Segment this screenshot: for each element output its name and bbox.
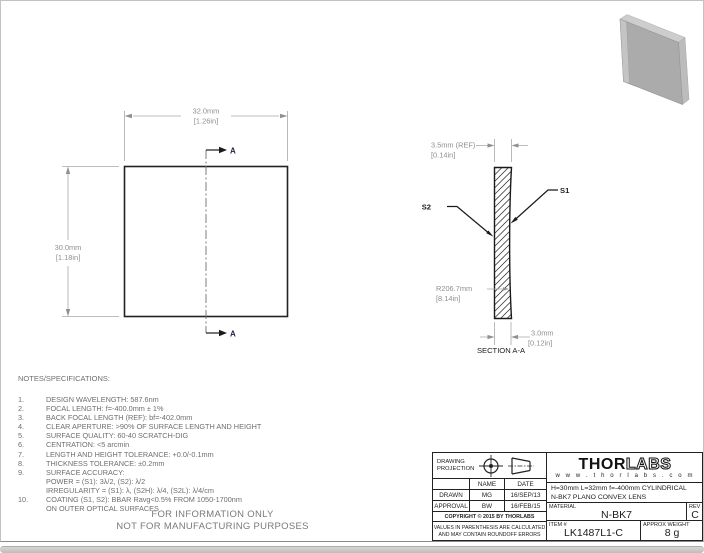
section-body-hatched xyxy=(495,168,512,319)
section-label-top: A xyxy=(230,147,236,156)
item-number-cell: ITEM # LK1487L1-C xyxy=(547,521,641,541)
dim-arrow xyxy=(125,114,133,118)
note-row: 1.DESIGN WAVELENGTH: 587.6nm xyxy=(18,395,418,404)
note-text: SURFACE ACCURACY: xyxy=(46,468,125,477)
dim-arrow xyxy=(280,114,288,118)
note-row: 9.SURFACE ACCURACY: xyxy=(18,468,418,477)
parenthesis-disclaimer: VALUES IN PARENTHESIS ARE CALCULATED AND… xyxy=(433,522,547,541)
notes-specifications: NOTES/SPECIFICATIONS: 1.DESIGN WAVELENGT… xyxy=(18,374,418,513)
note-row: IRREGULARITY = (S1): λ, (S2H): λ/4, (S2L… xyxy=(18,486,418,495)
note-number: 8. xyxy=(18,459,46,468)
drawing-projection-label: DRAWING PROJECTION xyxy=(437,459,474,472)
dim-arrow xyxy=(66,167,70,175)
section-arrow-top xyxy=(219,147,227,153)
approval-date: 16/FEB/15 xyxy=(505,501,547,512)
section-caption: SECTION A-A xyxy=(477,346,526,355)
thorlabs-logo: THORLABS w w w . t h o r l a b s . c o m xyxy=(547,453,703,483)
note-row: 3.BACK FOCAL LENGTH (REF): bf=-402.0mm xyxy=(18,413,418,422)
horizontal-scrollbar[interactable] xyxy=(0,546,704,553)
note-number: 6. xyxy=(18,440,46,449)
rev-cell: REV C xyxy=(687,503,703,521)
note-row: 2.FOCAL LENGTH: f=-400.0mm ± 1% xyxy=(18,404,418,413)
logo-thor: THOR xyxy=(579,456,626,473)
date-header: DATE xyxy=(505,479,547,490)
material-cell: MATERIAL N-BK7 xyxy=(547,503,687,521)
note-text: POWER = (S1): 3λ/2, (S2): λ/2 xyxy=(46,477,145,486)
rev-value: C xyxy=(689,510,701,521)
lens-3d-front-face xyxy=(620,19,683,105)
info-only-disclaimer: FOR INFORMATION ONLY NOT FOR MANUFACTURI… xyxy=(40,509,385,532)
note-number: 1. xyxy=(18,395,46,404)
note-text: COATING (S1, S2): BBAR Ravg<0.5% FROM 10… xyxy=(46,495,242,504)
drawn-name: MG xyxy=(470,490,505,501)
note-text: CLEAR APERTURE: >90% OF SURFACE LENGTH A… xyxy=(46,422,261,431)
section-view: 3.5mm (REF) [0.14in] 3.0mm [0.12in] R206… xyxy=(422,139,570,355)
edge-thickness-in: [0.14in] xyxy=(431,151,455,160)
drawing-projection-cell: DRAWING PROJECTION xyxy=(433,453,547,479)
center-thickness-in: [0.12in] xyxy=(528,339,552,348)
note-row: 6.CENTRATION: <5 arcmin xyxy=(18,440,418,449)
front-height-in: [1.18in] xyxy=(56,253,80,262)
name-header: NAME xyxy=(470,479,505,490)
radius-in: [8.14in] xyxy=(436,294,460,303)
drawn-label: DRAWN xyxy=(433,490,470,501)
approval-label: APPROVAL xyxy=(433,501,470,512)
s1-leader-line xyxy=(513,190,558,222)
dim-arrow xyxy=(511,335,518,339)
note-text: LENGTH AND HEIGHT TOLERANCE: +0.0/-0.1mm xyxy=(46,450,214,459)
thorlabs-url: w w w . t h o r l a b s . c o m xyxy=(555,473,694,479)
dim-arrow xyxy=(512,143,519,147)
note-row: POWER = (S1): 3λ/2, (S2): λ/2 xyxy=(18,477,418,486)
s1-label: S1 xyxy=(560,186,570,195)
drawn-date: 16/SEP/13 xyxy=(505,490,547,501)
material-value: N-BK7 xyxy=(549,510,684,521)
note-number: 9. xyxy=(18,468,46,477)
note-number: 5. xyxy=(18,431,46,440)
note-text: DESIGN WAVELENGTH: 587.6nm xyxy=(46,395,159,404)
notes-heading: NOTES/SPECIFICATIONS: xyxy=(18,374,418,383)
note-text: CENTRATION: <5 arcmin xyxy=(46,440,129,449)
note-row: 5.SURFACE QUALITY: 60-40 SCRATCH-DIG xyxy=(18,431,418,440)
approx-weight-cell: APPROX WEIGHT 8 g xyxy=(641,521,703,541)
edge-thickness-lines xyxy=(476,139,528,162)
center-thickness-lines xyxy=(480,322,530,345)
note-row: 7.LENGTH AND HEIGHT TOLERANCE: +0.0/-0.1… xyxy=(18,450,418,459)
front-view: 32.0mm [1.26in] 30.0mm [1.18in] A A xyxy=(55,107,288,339)
technical-drawing-page: { "drawing": { "front_view": { "width_mm… xyxy=(0,0,704,553)
note-row: 4.CLEAR APERTURE: >90% OF SURFACE LENGTH… xyxy=(18,422,418,431)
part-description: H=30mm L=32mm f=-400mm CYLINDRICAL N-BK7… xyxy=(547,483,703,503)
disclaimer-line2: AND MAY CONTAIN ROUNDOFF ERRORS xyxy=(438,532,540,539)
third-angle-projection-icon xyxy=(478,454,540,478)
front-height-mm: 30.0mm xyxy=(55,243,82,252)
radius-mm: R206.7mm xyxy=(436,284,472,293)
lens-3d-view xyxy=(620,15,689,105)
logo-labs: LABS xyxy=(626,456,672,473)
approval-name: BW xyxy=(470,501,505,512)
copyright-notice: COPYRIGHT © 2015 BY THORLABS xyxy=(433,512,547,522)
note-text: SURFACE QUALITY: 60-40 SCRATCH-DIG xyxy=(46,431,188,440)
info-only-line2: NOT FOR MANUFACTURING PURPOSES xyxy=(40,521,385,533)
dim-arrow xyxy=(488,143,495,147)
note-text: THICKNESS TOLERANCE: ±0.2mm xyxy=(46,459,165,468)
section-label-bottom: A xyxy=(230,330,236,339)
front-width-mm: 32.0mm xyxy=(193,107,220,116)
note-text: BACK FOCAL LENGTH (REF): bf=-402.0mm xyxy=(46,413,192,422)
note-number: 4. xyxy=(18,422,46,431)
item-value: LK1487L1-C xyxy=(549,528,638,539)
edge-thickness-mm: 3.5mm (REF) xyxy=(431,141,475,150)
blank-header-cell xyxy=(433,479,470,490)
front-width-in: [1.26in] xyxy=(194,117,218,126)
center-thickness-mm: 3.0mm xyxy=(531,329,554,338)
title-block: DRAWING PROJECTION NAME DATE DRAWN MG 16… xyxy=(432,452,703,541)
description-line1: H=30mm L=32mm f=-400mm CYLINDRICAL xyxy=(551,485,699,494)
dim-arrow xyxy=(66,309,70,317)
dim-arrow xyxy=(488,335,495,339)
description-line2: N-BK7 PLANO CONVEX LENS xyxy=(551,494,699,503)
note-number xyxy=(18,486,46,495)
info-only-line1: FOR INFORMATION ONLY xyxy=(40,509,385,521)
note-text: IRREGULARITY = (S1): λ, (S2H): λ/4, (S2L… xyxy=(46,486,214,495)
note-row: 10.COATING (S1, S2): BBAR Ravg<0.5% FROM… xyxy=(18,495,418,504)
note-text: FOCAL LENGTH: f=-400.0mm ± 1% xyxy=(46,404,163,413)
section-arrow-bottom xyxy=(219,330,227,336)
note-number: 3. xyxy=(18,413,46,422)
height-dimension-lines xyxy=(62,167,119,317)
weight-value: 8 g xyxy=(643,528,701,539)
s2-leader-line xyxy=(447,207,491,235)
note-row: 8.THICKNESS TOLERANCE: ±0.2mm xyxy=(18,459,418,468)
note-number: 2. xyxy=(18,404,46,413)
note-number xyxy=(18,477,46,486)
note-number: 10. xyxy=(18,495,46,504)
note-number: 7. xyxy=(18,450,46,459)
s2-label: S2 xyxy=(422,203,431,212)
